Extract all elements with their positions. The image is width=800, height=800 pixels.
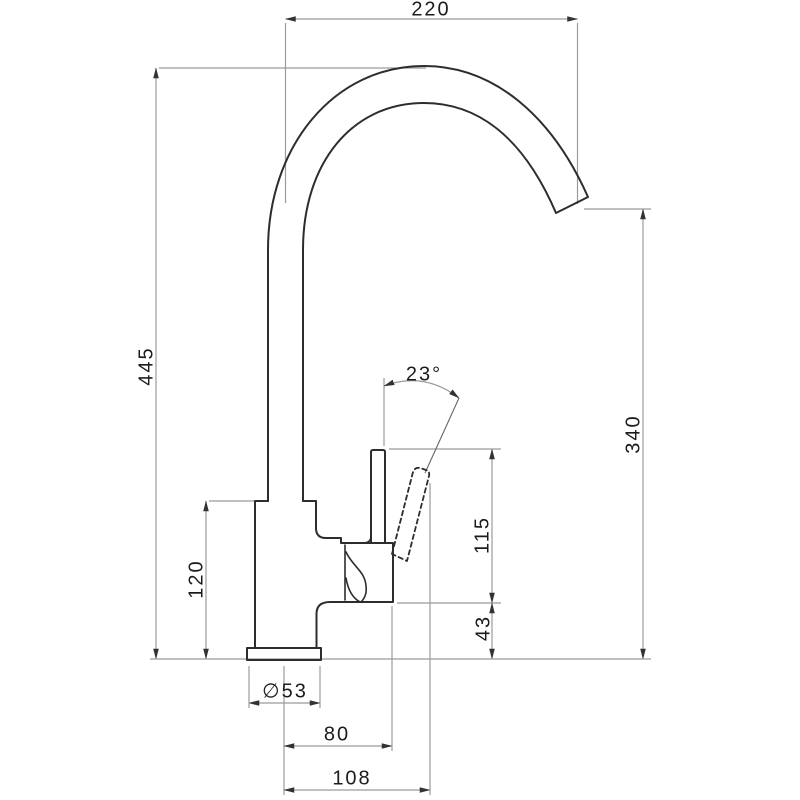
handle-tilted-dashed [392,468,429,561]
handle-upright [371,450,385,543]
dim-label-body-height: 120 [186,559,209,598]
dim-label-body-step-height: 43 [473,615,496,641]
dim-label-handle-angle: 23° [406,364,442,387]
spout-path [268,66,588,501]
dimension-lines [150,19,651,795]
handle-axis-leader-line [425,398,459,473]
drawing-canvas: 220 445 120 340 115 43 23° ∅53 80 108 [0,0,800,800]
dim-label-cartridge-offset: 80 [324,724,350,747]
body-left-path [255,501,268,648]
faucet-technical-drawing [0,0,800,800]
dim-label-handle-lever-height: 115 [472,516,495,554]
base-flange [247,648,321,660]
body-right-path [303,501,393,648]
lever-curve [346,552,366,602]
dim-label-spout-reach: 220 [411,0,450,22]
dim-label-base-diameter: ∅53 [262,679,308,704]
dim-label-overall-height: 445 [136,346,159,385]
dim-label-handle-tip-offset: 108 [332,768,371,791]
dim-label-outlet-height: 340 [623,414,646,453]
lever-curve-2 [346,578,360,602]
handle-foot-curve [363,536,371,543]
